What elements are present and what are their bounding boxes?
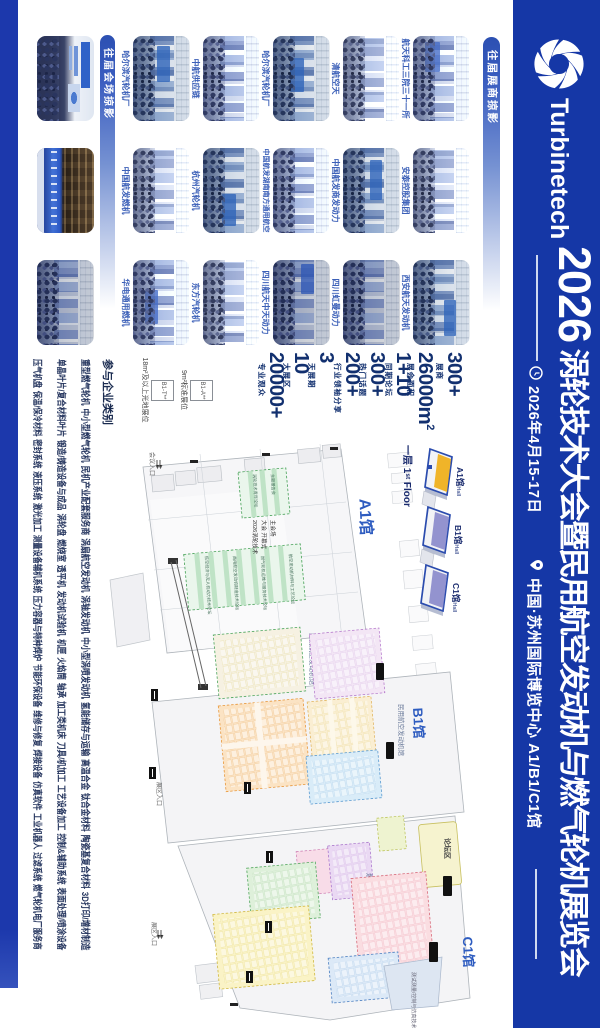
svg-text:测试测量/控制与仿真技术区: 测试测量/控制与仿真技术区: [410, 972, 417, 1028]
svg-text:主会场: 主会场: [269, 520, 277, 537]
svg-text:A1馆Hall: A1馆Hall: [455, 467, 465, 497]
svg-text:C1馆Hall: C1馆Hall: [451, 583, 461, 613]
svg-text:民用航空发动机馆: 民用航空发动机馆: [397, 704, 406, 757]
svg-text:展区入口: 展区入口: [150, 922, 157, 946]
svg-text:展区入口: 展区入口: [155, 782, 162, 806]
svg-text:C1馆: C1馆: [460, 936, 478, 968]
svg-text:B1馆: B1馆: [410, 707, 428, 739]
svg-text:大会 开幕式: 大会 开幕式: [260, 520, 268, 550]
svg-text:会议入口: 会议入口: [148, 452, 156, 476]
svg-text:B1馆Hall: B1馆Hall: [453, 525, 463, 555]
svg-text:论坛区: 论坛区: [443, 838, 452, 859]
svg-text:2026涡轮技术: 2026涡轮技术: [251, 520, 259, 555]
svg-text:一层 1st Floor: 一层 1st Floor: [401, 445, 413, 507]
svg-text:A1馆: A1馆: [355, 498, 376, 535]
